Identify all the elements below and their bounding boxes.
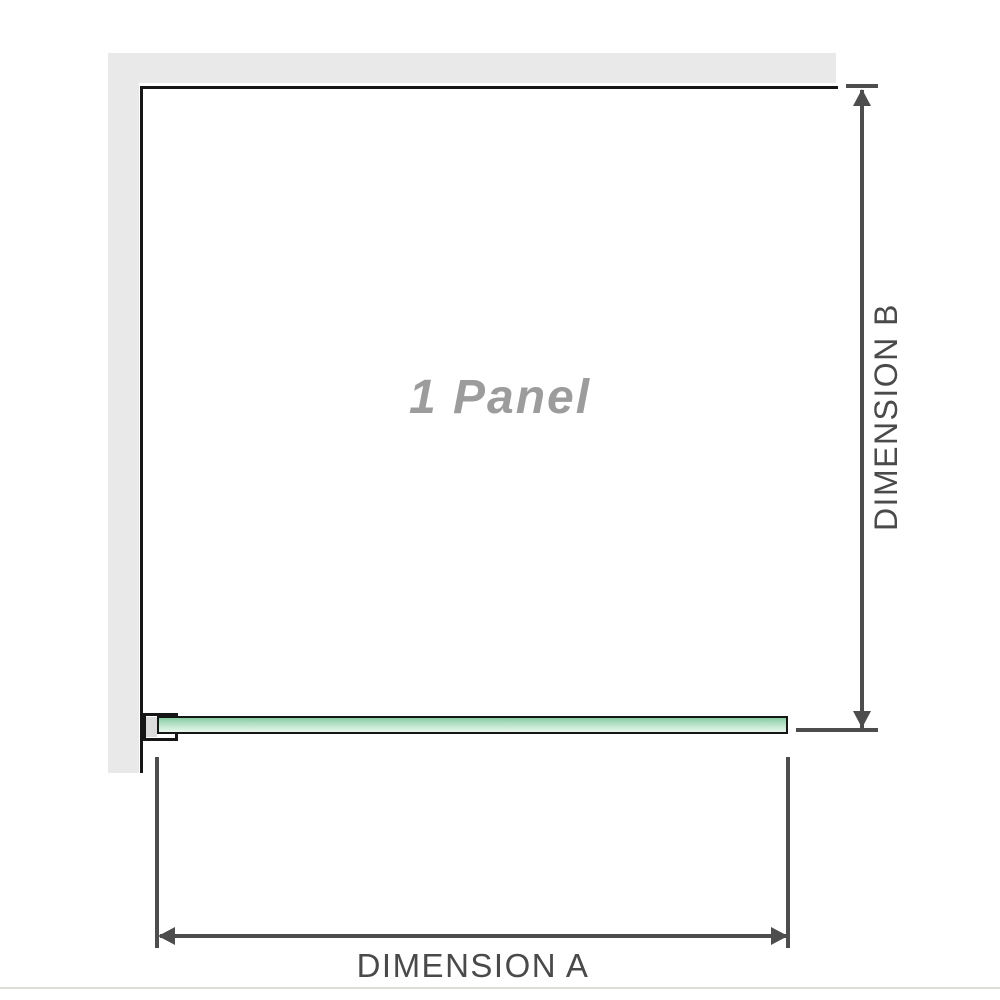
- dimension-b-line: [860, 90, 864, 730]
- panel-opening-outline: [140, 86, 838, 773]
- extension-line-right: [786, 757, 790, 948]
- dimension-a-line: [160, 934, 786, 938]
- bracket-gray-inset: [146, 717, 157, 737]
- wall-left-band: [108, 53, 139, 773]
- diagram-canvas: 1 Panel DIMENSION A DIMENSION B: [0, 0, 1000, 1000]
- glass-panel: [157, 716, 788, 734]
- panel-count-label: 1 Panel: [340, 370, 660, 426]
- wall-top-band: [108, 53, 836, 83]
- dimension-b-arrowhead-down: [853, 711, 871, 728]
- extension-line-left: [155, 757, 159, 948]
- dimension-a-arrowhead-left: [158, 927, 175, 945]
- dimension-b-arrowhead-up: [853, 89, 871, 106]
- dimension-b-tick-bottom: [796, 728, 878, 732]
- dimension-a-arrowhead-right: [771, 927, 788, 945]
- dimension-a-label: DIMENSION A: [258, 946, 688, 986]
- image-bottom-edge-line: [0, 987, 1000, 989]
- dimension-b-label: DIMENSION B: [869, 267, 903, 567]
- dimension-b-tick-top: [846, 84, 878, 88]
